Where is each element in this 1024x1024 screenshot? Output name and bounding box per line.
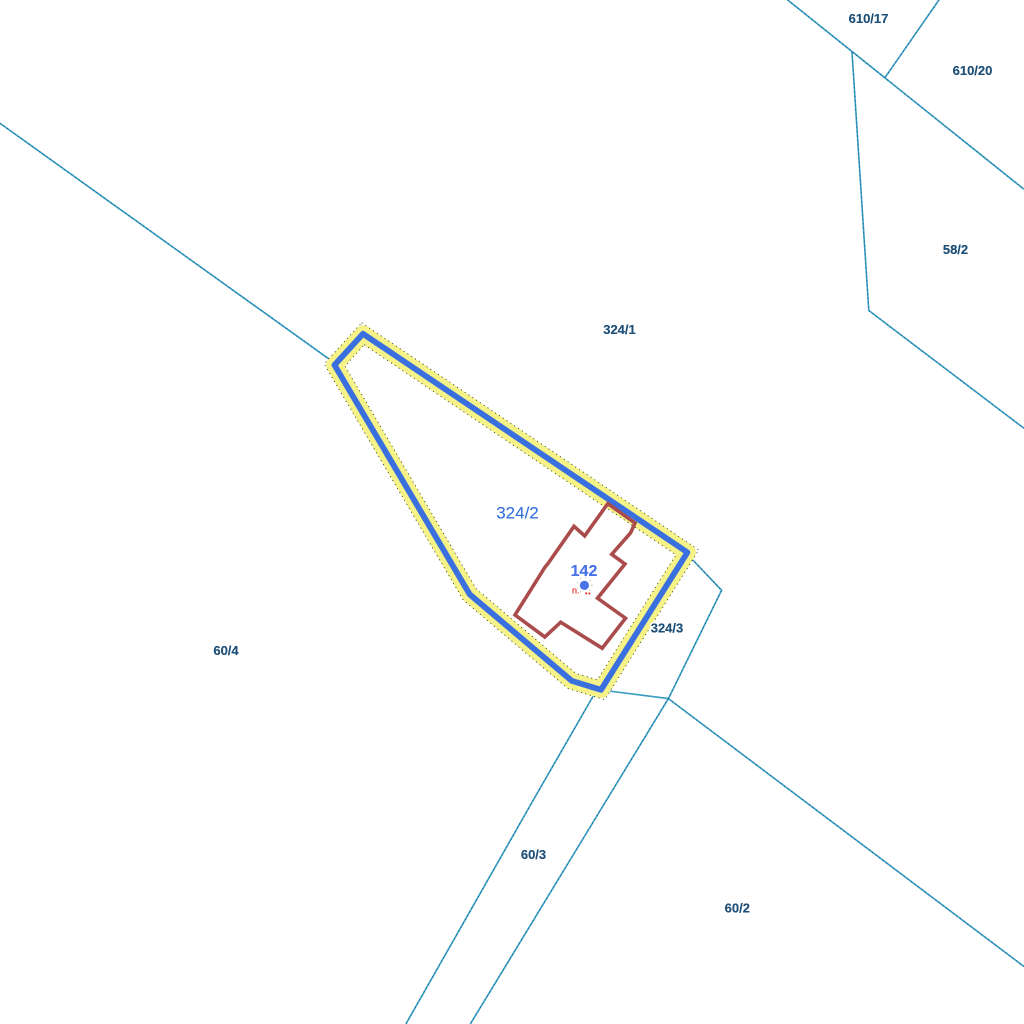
svg-text:324/1: 324/1 — [603, 322, 636, 337]
svg-text:610/17: 610/17 — [849, 11, 889, 26]
svg-text:60/2: 60/2 — [725, 901, 750, 916]
svg-text:n.: n. — [572, 586, 580, 596]
svg-text:610/20: 610/20 — [953, 63, 993, 78]
svg-text:324/3: 324/3 — [651, 621, 684, 636]
svg-text:60/3: 60/3 — [521, 847, 546, 862]
svg-text:58/2: 58/2 — [943, 242, 968, 257]
svg-text:60/4: 60/4 — [213, 643, 239, 658]
svg-text:324/2: 324/2 — [496, 504, 539, 523]
